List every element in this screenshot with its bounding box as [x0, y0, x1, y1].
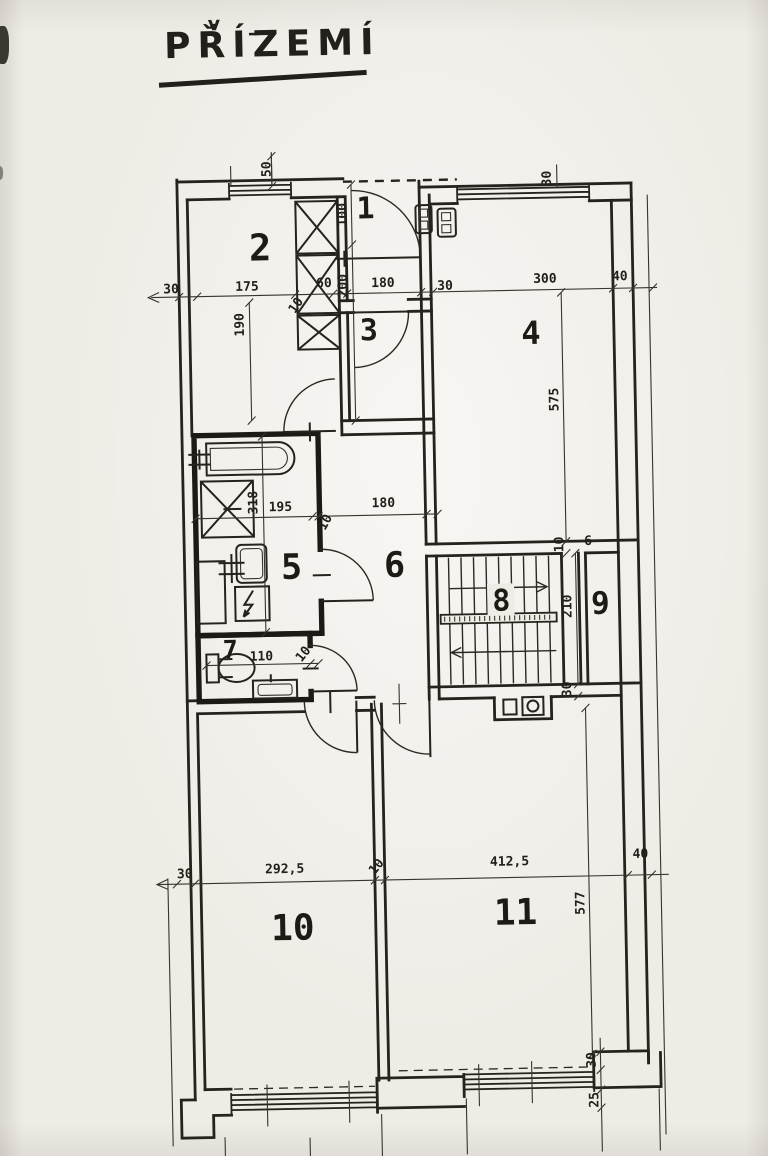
bathroom-walls [194, 433, 322, 635]
dim-label: 30 [177, 867, 193, 882]
bathtub [188, 442, 295, 476]
dim-label: 180 [371, 276, 395, 291]
dim-label: 210 [560, 594, 575, 618]
dim-label: 175 [235, 279, 259, 294]
room-label-6: 6 [384, 546, 406, 586]
room-label-7: 7 [222, 635, 238, 664]
niche-cupboard [196, 561, 225, 624]
door-room2 [283, 379, 336, 442]
dim-label: 300 [533, 271, 557, 286]
dim-label: 10 [552, 536, 567, 552]
dim-label: 30 [540, 170, 555, 186]
chimney-flues-room4 [415, 204, 456, 237]
dim-label: 577 [573, 891, 588, 915]
dim-label: 30 [584, 1052, 599, 1068]
room-label-10: 10 [271, 907, 315, 949]
dim-label: 100 [335, 203, 350, 227]
dim-label: 412,5 [490, 854, 529, 870]
room-label-1: 1 [356, 191, 375, 226]
floorplan-svg: 50 30 175 190 60 10 180 30 300 40 100 20… [0, 0, 768, 1156]
dim-label: 195 [269, 500, 293, 515]
wc-sink [253, 674, 297, 699]
tilted-drawing: v – PŘÍZEMÍ [0, 0, 768, 1156]
dim-label: 30 [560, 681, 575, 697]
window-room10-bottom [231, 1080, 378, 1127]
door-entry-room1 [335, 189, 421, 267]
room-label-9: 9 [591, 585, 610, 621]
dim-label: 60 [316, 276, 332, 291]
dim-label: 575 [547, 388, 562, 412]
staircase [439, 556, 558, 685]
entry-porch-dashed-line [343, 179, 457, 181]
door-bathroom-hall [312, 548, 373, 601]
dim-label: 110 [250, 649, 274, 664]
dim-label: 292,5 [265, 862, 304, 878]
water-heater [235, 586, 270, 621]
room-label-8: 8 [492, 583, 511, 618]
room-label-11: 11 [494, 892, 538, 934]
room-numbers: 1 2 3 4 5 6 7 8 9 10 11 [214, 187, 617, 951]
dim-label: 40 [612, 269, 628, 284]
dim-label: 25 [587, 1092, 602, 1108]
dim-label: 40 [632, 847, 648, 862]
dim-label: 50 [259, 161, 274, 177]
dim-label: 30 [437, 279, 453, 294]
room-label-2: 2 [249, 226, 272, 269]
dim-label: 200 [336, 274, 351, 298]
floorplan-scan: v – PŘÍZEMÍ [0, 0, 768, 1156]
room-label-5: 5 [281, 548, 303, 588]
dim-label: 318 [246, 491, 261, 515]
dim-label: 190 [232, 313, 247, 337]
room-label-4: 4 [521, 314, 541, 352]
dim-label: 6 [584, 534, 592, 549]
dim-label: 180 [371, 496, 395, 511]
chimney-flues-under-stairs [503, 697, 543, 716]
dim-label: 30 [163, 282, 179, 297]
window-room11-bottom [399, 1060, 595, 1108]
room-label-3: 3 [359, 313, 378, 348]
interior-walls [177, 177, 649, 1084]
